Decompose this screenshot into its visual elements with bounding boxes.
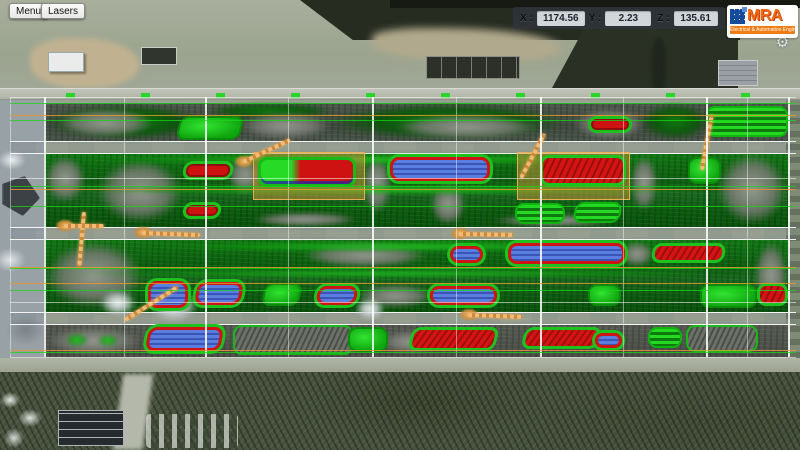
- mra-brand-text: MRA: [747, 7, 782, 25]
- stockpile-blue[interactable]: [595, 333, 622, 348]
- stockpile-redhatch[interactable]: [540, 155, 626, 186]
- stockpile-red[interactable]: [588, 116, 632, 133]
- stockpile-blue[interactable]: [508, 243, 625, 264]
- gray-pointcloud-blob: [250, 212, 360, 227]
- scan-line-green: [10, 352, 796, 353]
- grid-line-vertical: [540, 97, 542, 357]
- x-label: X :: [520, 13, 533, 24]
- stockpile-redhatch[interactable]: [520, 327, 602, 349]
- gray-pointcloud-blob: [630, 154, 658, 212]
- pointcloud-yard-viewport[interactable]: [0, 0, 800, 450]
- grid-line-vertical: [456, 97, 457, 357]
- scan-line-orange: [10, 350, 796, 351]
- scan-line-green: [10, 268, 796, 269]
- laser-scan-viewer: Menu Lasers X : 1174.56 Y : 2.23 Z : 135…: [0, 0, 800, 450]
- stockpile-blue[interactable]: [145, 327, 224, 351]
- grid-line-vertical: [623, 97, 624, 357]
- mra-mosaic-icon: [730, 9, 745, 24]
- yard-road: [10, 227, 796, 240]
- stockpile-blue[interactable]: [450, 246, 483, 263]
- crane-point-cloud: [64, 224, 104, 228]
- scan-line-green: [10, 290, 796, 291]
- grid-line-horizontal: [10, 178, 796, 179]
- gray-pointcloud-blob: [44, 155, 86, 203]
- grid-line-vertical: [44, 97, 46, 357]
- x-value: 1174.56: [537, 11, 585, 26]
- scan-line-orange: [10, 283, 796, 284]
- grid-line-vertical: [205, 97, 207, 357]
- mra-tagline: Electrical & Automation Engineering: [730, 26, 795, 34]
- stockpile-green[interactable]: [700, 284, 757, 308]
- scan-line-orange: [10, 115, 796, 116]
- gray-pointcloud-blob: [392, 114, 542, 140]
- scan-line-green: [10, 186, 796, 187]
- scan-line-green: [10, 120, 796, 121]
- stockpile-greenstripe[interactable]: [648, 327, 682, 348]
- gray-pointcloud-blob: [238, 112, 333, 140]
- white-pointcloud-blob: [100, 290, 136, 316]
- scan-line-green: [10, 103, 796, 104]
- grid-line-horizontal: [10, 302, 796, 303]
- green-pointcloud-blob: [98, 335, 118, 346]
- scan-line-green: [10, 206, 796, 207]
- grid-line-vertical: [747, 97, 748, 357]
- stockpile-combo[interactable]: [258, 157, 356, 187]
- grid-line-vertical: [124, 97, 125, 357]
- green-pointcloud-blob: [60, 270, 740, 277]
- stockpile-redhatch[interactable]: [407, 327, 500, 351]
- stockpile-redhatch[interactable]: [651, 243, 727, 263]
- grid-line-vertical: [788, 97, 790, 357]
- grid-line-vertical: [10, 97, 11, 357]
- scan-line-orange: [10, 189, 796, 190]
- grid-line-horizontal: [10, 97, 796, 98]
- y-label: Y :: [589, 13, 602, 24]
- grid-line-vertical: [706, 97, 708, 357]
- stockpile-green[interactable]: [348, 327, 388, 352]
- stockpile-red[interactable]: [182, 202, 222, 219]
- dgreen-pointcloud-blob: [640, 103, 710, 140]
- scan-line-orange: [10, 267, 796, 268]
- z-value: 135.61: [674, 11, 718, 26]
- grid-line-vertical: [288, 97, 289, 357]
- z-label: Z :: [657, 13, 669, 24]
- grid-line-vertical: [372, 97, 374, 357]
- y-value: 2.23: [605, 11, 651, 26]
- yard-road: [10, 141, 796, 154]
- green-pointcloud-blob: [66, 334, 88, 346]
- lasers-button[interactable]: Lasers: [41, 3, 85, 19]
- grid-line-horizontal: [10, 357, 796, 358]
- coordinate-readout-panel: X : 1174.56 Y : 2.23 Z : 135.61: [513, 7, 725, 29]
- gray-pointcloud-blob: [55, 108, 155, 138]
- mra-logo: MRA Electrical & Automation Engineering: [727, 5, 798, 38]
